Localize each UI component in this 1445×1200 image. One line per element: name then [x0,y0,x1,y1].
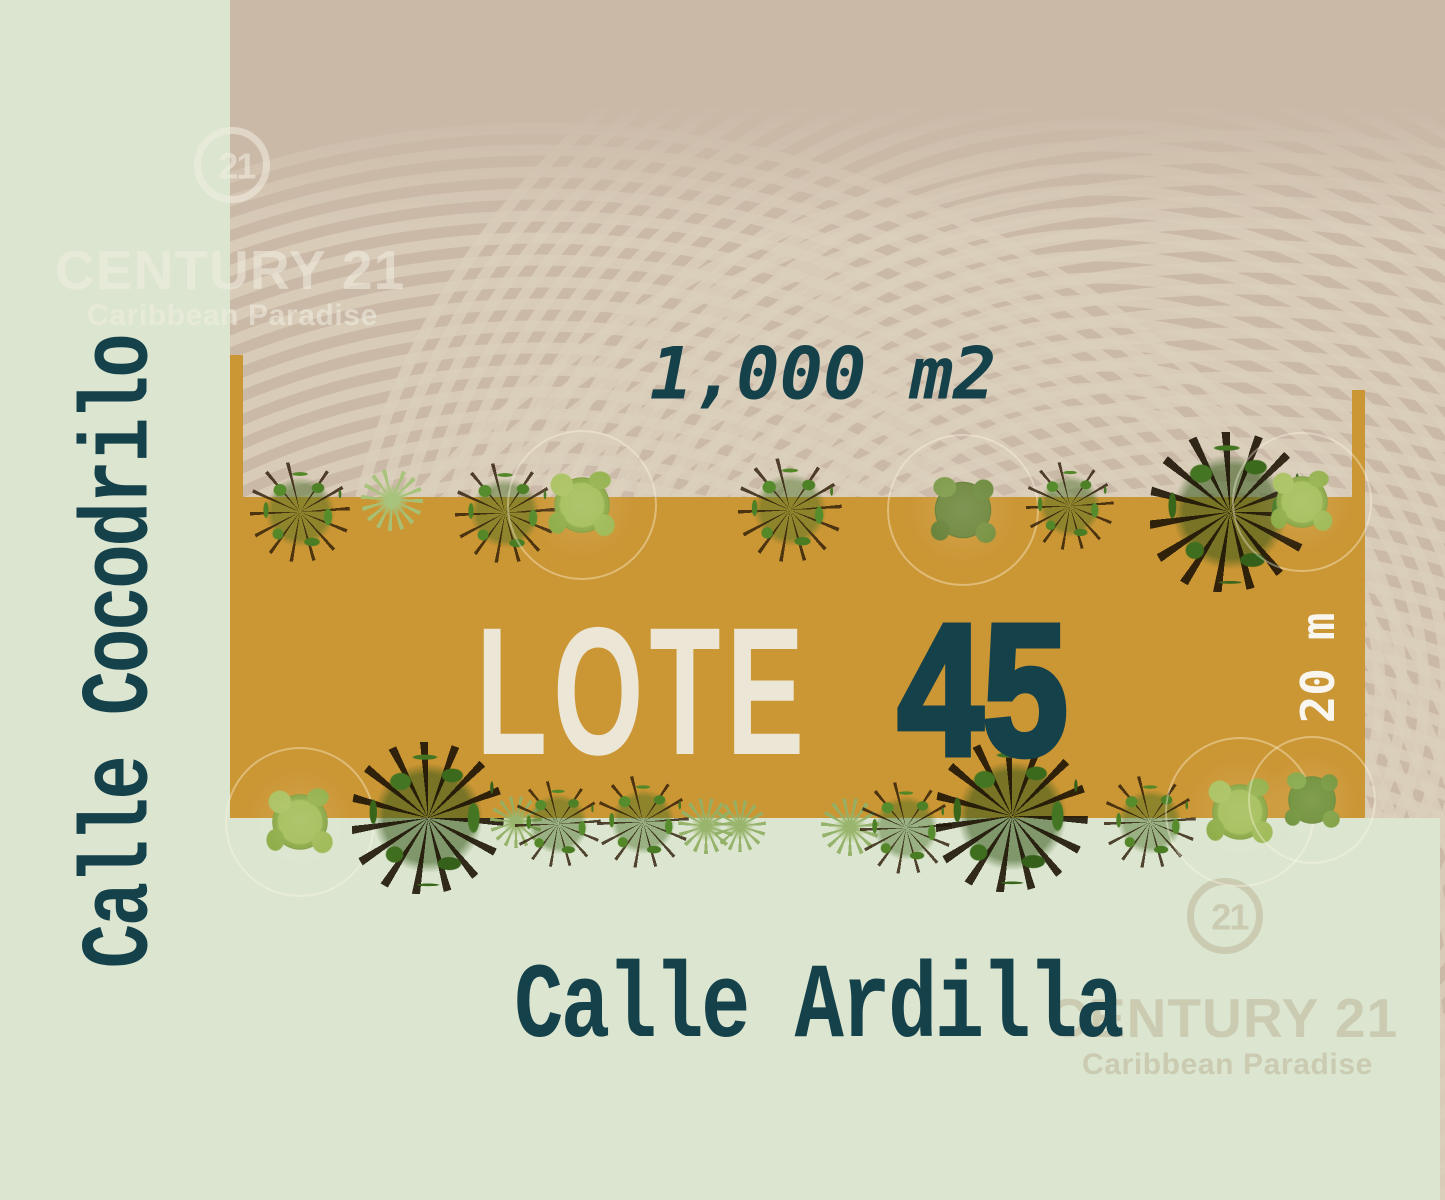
lot-boundary-left [230,355,243,500]
lot-area-label: 1,000 m2 [650,332,997,416]
lot-boundary-right [1352,390,1365,500]
lot-depth-label: 20 m [1291,613,1345,724]
lot-number-label: 45 [898,598,1068,784]
street-name-bottom: Calle Ardilla [514,948,1122,1069]
lot-title: LOTE 45 [476,598,1105,784]
lot-name-label: LOTE [476,600,810,782]
lot-site-plan: 21 CENTURY 21 Caribbean Paradise 21 CENT… [0,0,1445,1200]
street-name-left: Calle Cocodrilo [67,336,176,969]
